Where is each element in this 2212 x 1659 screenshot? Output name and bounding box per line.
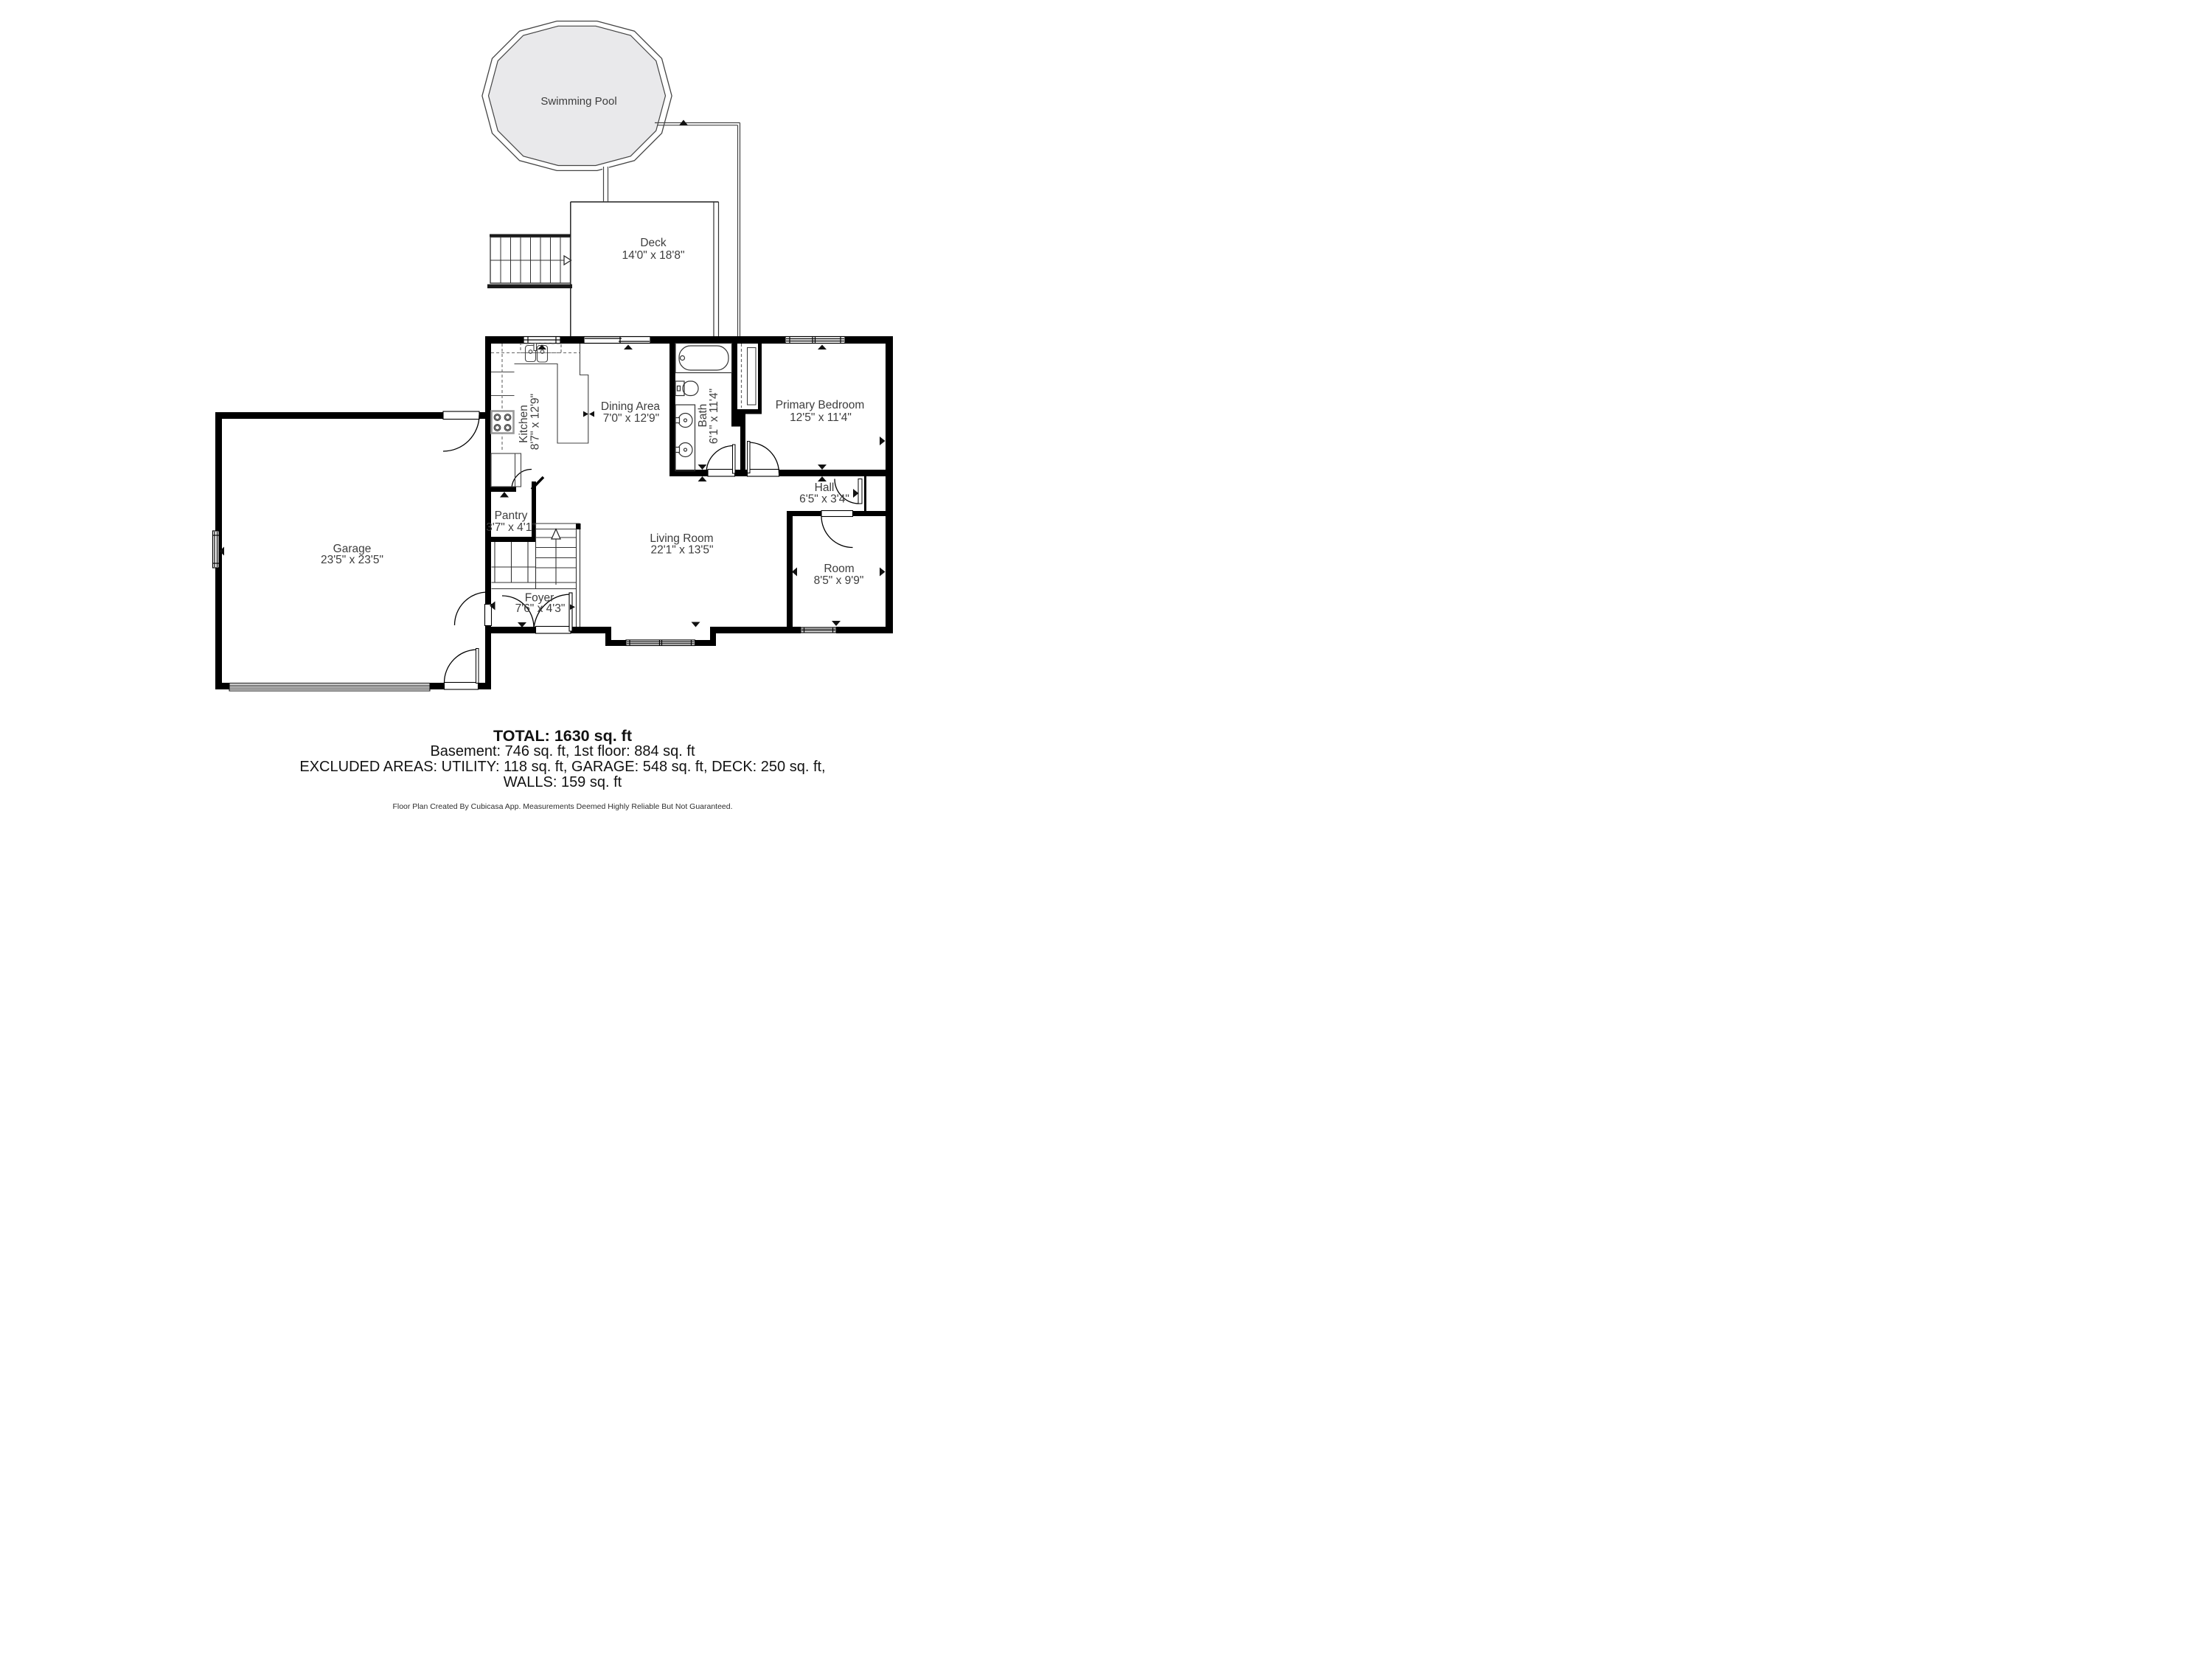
room-label: Room xyxy=(824,563,854,575)
dining-label: Dining Area xyxy=(601,400,661,413)
garage-back-door-arc xyxy=(443,415,479,451)
bath-door-leaf xyxy=(733,445,736,473)
pantry-door-opening xyxy=(516,487,532,493)
garage-back-door-threshold xyxy=(443,411,479,420)
primary-bedroom-label: Primary Bedroom xyxy=(776,399,865,411)
kitchen-dims: 8'7" x 12'9" xyxy=(529,394,542,450)
swimming-pool-label: Swimming Pool xyxy=(540,95,616,108)
bedroom-window xyxy=(785,336,845,344)
bedroom-right-arrow-icon xyxy=(880,437,886,445)
floor-plan-drawing: Swimming Pool Deck 14'0" x 18'8" Kitchen… xyxy=(0,0,1106,829)
opening-markers xyxy=(220,345,886,628)
front-door-leaf xyxy=(569,593,572,631)
kitchen-label: Kitchen xyxy=(518,405,530,443)
garage-service-door-threshold xyxy=(445,683,479,690)
hall-closet-arrow-icon xyxy=(853,489,859,498)
foyer-dims: 7'6" x 4'3" xyxy=(515,602,566,615)
garage-foyer-door-threshold xyxy=(485,605,492,626)
vanity-double-sink xyxy=(675,405,695,471)
kitchen-window xyxy=(524,336,560,344)
dining-bowtie-right-icon xyxy=(589,411,594,417)
front-door-threshold xyxy=(536,627,571,634)
room-right-arrow-icon xyxy=(880,568,886,577)
primary-bedroom-dims: 12'5" x 11'4" xyxy=(790,411,852,424)
floor-plan-page: Swimming Pool Deck 14'0" x 18'8" Kitchen… xyxy=(0,0,1106,829)
deck-outline xyxy=(571,202,719,336)
pantry-dims: 3'7" x 4'1" xyxy=(486,521,536,534)
bay-window-arrow-icon xyxy=(692,622,700,627)
disclaimer-text: Floor Plan Created By Cubicasa App. Meas… xyxy=(10,802,1106,811)
pantry-label: Pantry xyxy=(495,509,528,522)
bedroom-wall-bowtie-bottom-icon xyxy=(818,476,827,481)
stairs-up-arrow-icon xyxy=(552,529,560,540)
walls xyxy=(215,336,893,689)
stove xyxy=(492,411,514,434)
bedroom-door-arc xyxy=(748,442,779,473)
room-door-threshold xyxy=(821,511,853,517)
bedroom-wall-bowtie-top-icon xyxy=(818,465,827,470)
room-window-arrow-icon xyxy=(832,621,841,626)
door-thresholds xyxy=(229,411,853,690)
bath-dims: 6'1" x 11'4" xyxy=(708,389,720,444)
patio-door-arrow-icon xyxy=(624,345,633,350)
kitchen-counter-lower xyxy=(491,453,521,487)
excluded-areas-text: EXCLUDED AREAS: UTILITY: 118 sq. ft, GAR… xyxy=(10,759,1106,776)
room-dims: 8'5" x 9'9" xyxy=(814,574,864,587)
bedroom-door-leaf xyxy=(748,442,751,473)
deck-stairs xyxy=(487,234,572,289)
deck-dims: 14'0" x 18'8" xyxy=(622,249,684,262)
living-wall-arrow-icon xyxy=(792,568,797,577)
bay-window xyxy=(626,639,695,647)
bedroom-closet xyxy=(742,344,757,408)
deck-label: Deck xyxy=(640,237,667,249)
bath-wall-bowtie-bottom-icon xyxy=(698,476,707,481)
garage-overhead-door xyxy=(229,684,430,692)
bath-wall-bowtie-top-icon xyxy=(698,465,707,470)
toilet xyxy=(675,381,698,396)
bedroom-door-threshold xyxy=(748,470,779,477)
bath-door-threshold xyxy=(708,470,735,477)
dining-bowtie-left-icon xyxy=(583,411,588,417)
garage-foyer-door-arc-garage-side xyxy=(455,592,488,625)
bedroom-window-arrow-icon xyxy=(818,345,827,350)
room-door-arc xyxy=(821,516,853,548)
hall-dims: 6'5" x 3'4" xyxy=(799,493,849,506)
swimming-pool-shape xyxy=(482,21,740,336)
living-room-dims: 22'1" x 13'5" xyxy=(650,544,713,557)
garage-dims: 23'5" x 23'5" xyxy=(321,554,383,566)
pantry-arrow-icon xyxy=(500,492,509,498)
hall-closet-door-leaf xyxy=(858,479,862,504)
floor-areas-text: Basement: 746 sq. ft, 1st floor: 884 sq.… xyxy=(10,743,1106,760)
room-labels: Swimming Pool Deck 14'0" x 18'8" Kitchen… xyxy=(321,95,864,615)
garage-window xyxy=(212,531,220,568)
living-room-label: Living Room xyxy=(650,532,713,545)
patio-slider-door xyxy=(584,336,650,344)
garage-service-door-leaf xyxy=(476,649,479,684)
room-window xyxy=(801,627,836,633)
walls-area-text: WALLS: 159 sq. ft xyxy=(10,774,1106,791)
dining-dims: 7'0" x 12'9" xyxy=(603,412,659,425)
garage-service-door-arc xyxy=(445,650,478,683)
hall-label: Hall xyxy=(815,481,835,494)
foyer-door-arrow-icon xyxy=(518,622,526,627)
